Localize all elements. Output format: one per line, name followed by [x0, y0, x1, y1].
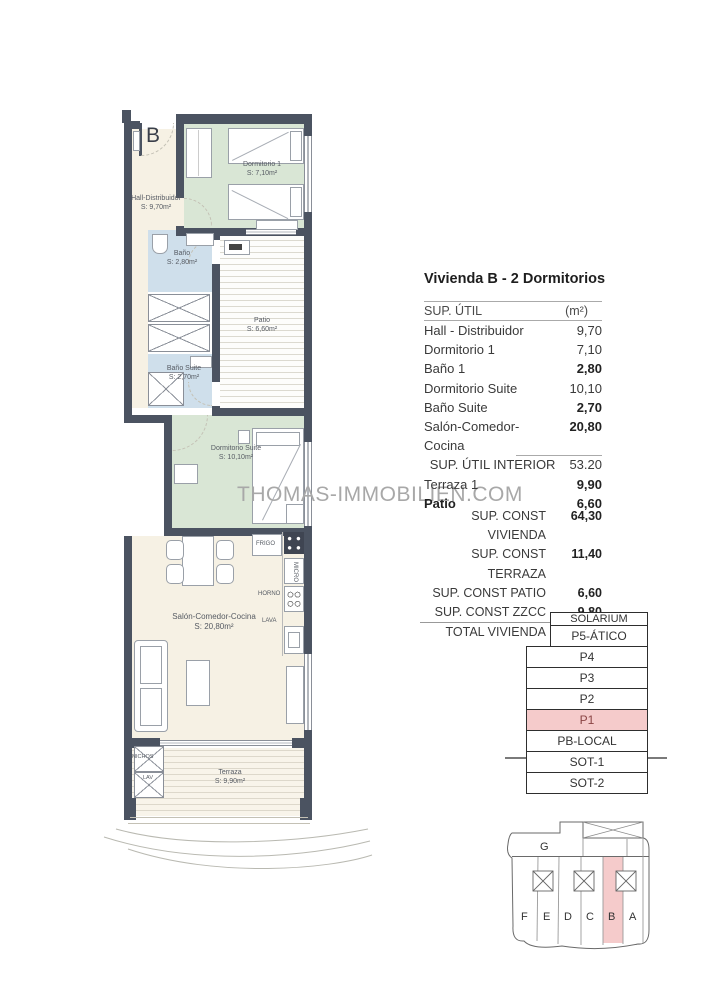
row-value: 2,80 — [556, 359, 602, 378]
chair — [216, 564, 234, 584]
site-plan-fragment: G F E D C B A — [500, 812, 670, 967]
toilet — [152, 234, 168, 254]
row-value: 9,70 — [556, 321, 602, 340]
closet — [148, 324, 210, 352]
table-row: Dormitorio 17,10 — [424, 340, 602, 359]
ac-unit-grill — [229, 244, 242, 250]
row-label: SUP. CONST PATIO — [420, 584, 556, 603]
area-summary-table: Vivienda B - 2 Dormitorios SUP. ÚTIL (m²… — [424, 271, 602, 513]
pillow — [290, 187, 302, 217]
interior-total-row: SUP. ÚTIL INTERIOR53.20 — [424, 455, 602, 474]
wall — [124, 536, 132, 820]
row-label: Terraza 1 — [424, 475, 478, 494]
row-label: SUP. CONST VIVIENDA — [420, 507, 556, 545]
wall — [176, 114, 184, 198]
room-area-terraza: S: 9,90m² — [215, 777, 245, 786]
fridge-label: FRIGO — [256, 541, 275, 547]
counter-edge — [282, 532, 283, 656]
row-value: 7,10 — [556, 340, 602, 359]
row-label: Salón-Comedor-Cocina — [424, 417, 557, 455]
nightstand — [238, 430, 250, 444]
shelf — [174, 464, 198, 484]
room-area-dorm-suite: S: 10,10m² — [211, 453, 261, 462]
room-area-patio: S: 6,60m² — [247, 325, 277, 334]
electrical-panel — [133, 131, 140, 151]
floor-level-stack: SOLARIUM P5-ÁTICO P4 P3 P2 P1 PB-LOCAL S… — [526, 612, 648, 794]
stair-core-icon — [533, 871, 636, 891]
landscape-curves — [98, 815, 378, 890]
room-label-hall: Hall-Distribuidor — [131, 194, 181, 203]
storage-label-top: NICHOS — [132, 754, 153, 760]
table-row: Dormitorio Suite10,10 — [424, 379, 602, 398]
summary-header-label: SUP. ÚTIL — [424, 303, 482, 319]
pillow — [256, 432, 300, 446]
site-unit-letter: F — [521, 911, 528, 923]
pillow — [290, 131, 302, 161]
table-row: SUP. CONST PATIO6,60 — [420, 584, 602, 603]
wall — [124, 121, 132, 422]
unit-letter: B — [146, 124, 160, 148]
shelf — [286, 504, 304, 524]
floorplan-page: FRIGO MICRO HORNO LAVA NICHOS LAV B Hall… — [0, 0, 703, 1000]
sofa-cushion — [140, 646, 162, 684]
wardrobe — [186, 128, 212, 178]
row-label: Baño Suite — [424, 398, 488, 417]
window — [304, 136, 312, 212]
site-unit-letter: D — [564, 911, 572, 923]
sliding-door — [160, 740, 292, 746]
chair — [166, 564, 184, 584]
dresser — [256, 220, 298, 230]
room-label-dorm-suite: Dormitorio Suite — [211, 444, 261, 453]
room-area-dorm1: S: 7,10m² — [243, 169, 281, 178]
wall — [164, 415, 172, 536]
floor-level: P2 — [526, 688, 648, 710]
row-label: Hall - Distribuidor — [424, 321, 524, 340]
site-block-label: G — [540, 841, 549, 853]
row-value: 64,30 — [556, 507, 602, 545]
floor-level: P4 — [526, 646, 648, 668]
window — [304, 654, 312, 730]
room-area-bath-suite: S: 2,70m² — [167, 373, 201, 382]
microwave-label: MICRO — [292, 562, 298, 582]
kitchen-sink-bowl — [288, 632, 300, 648]
hob — [284, 532, 304, 554]
site-unit-letter: E — [543, 911, 550, 923]
floor-level: SOLARIUM — [550, 612, 648, 626]
row-label: Dormitorio 1 — [424, 340, 495, 359]
row-value: 2,70 — [556, 398, 602, 417]
table-row: Hall - Distribuidor9,70 — [424, 321, 602, 340]
floor-level: P5-ÁTICO — [550, 625, 648, 647]
row-label: Dormitorio Suite — [424, 379, 517, 398]
floor-level: SOT-1 — [526, 751, 648, 773]
storage-label-bottom: LAV — [143, 775, 153, 781]
row-value: 10,10 — [556, 379, 602, 398]
chair — [216, 540, 234, 560]
room-area-bath1: S: 2,80m² — [167, 258, 197, 267]
room-label-bath-suite: Baño Suite — [167, 364, 201, 373]
summary-header-unit: (m²) — [565, 303, 602, 319]
row-value: 11,40 — [556, 545, 602, 583]
site-unit-letter: B — [608, 911, 615, 923]
dishwasher-label: LAVA — [262, 618, 276, 624]
closet — [148, 294, 210, 322]
room-area-salon: S: 20,80m² — [172, 622, 256, 632]
row-value: 6,60 — [556, 584, 602, 603]
summary-header: SUP. ÚTIL (m²) — [424, 301, 602, 321]
summary-title: Vivienda B - 2 Dormitorios — [424, 271, 602, 287]
wall — [212, 408, 312, 416]
room-label-salon: Salón-Comedor-Cocina — [172, 612, 256, 622]
oven — [284, 586, 304, 612]
row-value: 9,90 — [556, 475, 602, 494]
table-row: Terraza 19,90 — [424, 475, 602, 494]
room-label-terraza: Terraza — [215, 768, 245, 777]
site-unit-letter: C — [586, 911, 594, 923]
room-label-patio: Patio — [247, 316, 277, 325]
row-label: SUP. ÚTIL INTERIOR — [430, 455, 556, 474]
floor-level: SOT-2 — [526, 772, 648, 794]
sink — [186, 233, 214, 246]
wall — [292, 738, 312, 748]
room-label-bath1: Baño — [167, 249, 197, 258]
door-gap — [212, 382, 220, 406]
row-label: Baño 1 — [424, 359, 465, 378]
table-row: Salón-Comedor-Cocina20,80 — [424, 417, 602, 455]
coffee-table — [186, 660, 210, 706]
floor-level: P3 — [526, 667, 648, 689]
row-value: 20,80 — [557, 417, 602, 455]
site-unit-letter: A — [629, 911, 637, 923]
room-label-dorm1: Dormitorio 1 — [243, 160, 281, 169]
table-row: Baño 12,80 — [424, 359, 602, 378]
row-label: SUP. CONST TERRAZA — [420, 545, 556, 583]
oven-label: HORNO — [258, 591, 280, 597]
sofa-cushion — [140, 688, 162, 726]
room-area-hall: S: 9,70m² — [131, 203, 181, 212]
wardrobe-line — [198, 130, 199, 176]
chair — [166, 540, 184, 560]
table-row: SUP. CONST VIVIENDA64,30 — [420, 507, 602, 545]
dining-table — [182, 536, 214, 586]
tv-unit — [286, 666, 304, 724]
site-unit-b-highlight — [603, 857, 623, 943]
corridor-floor — [132, 230, 148, 408]
row-value: 53.20 — [569, 455, 602, 474]
floor-level-highlighted: P1 — [526, 709, 648, 731]
floor-level: PB-LOCAL — [526, 730, 648, 752]
table-row: SUP. CONST TERRAZA11,40 — [420, 545, 602, 583]
table-row: Baño Suite2,70 — [424, 398, 602, 417]
wall — [176, 114, 312, 124]
